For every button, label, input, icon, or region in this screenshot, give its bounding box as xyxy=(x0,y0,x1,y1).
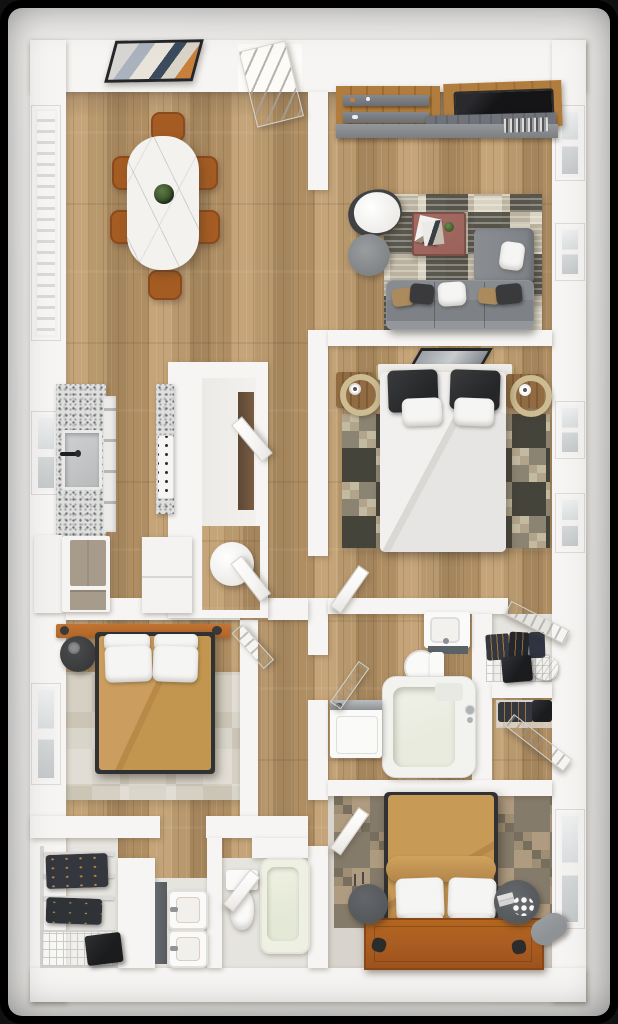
wall-bath2-top xyxy=(252,838,308,858)
closet-hanging-clothes-1 xyxy=(45,853,108,889)
washing-machine xyxy=(330,700,382,758)
sink-faucet xyxy=(170,907,178,912)
closet-a-clothes-3 xyxy=(529,632,546,659)
bed2-nightstand-black xyxy=(60,636,96,672)
wall-corridor-bath2 xyxy=(207,838,222,968)
bath2-sink-1 xyxy=(168,890,208,930)
wall-bed2-bottom-left xyxy=(30,816,160,838)
floorplan-render xyxy=(0,0,618,1024)
wall-closet-corridor xyxy=(118,858,155,968)
bedroom2-window xyxy=(32,684,60,784)
dining-centerpiece-plant xyxy=(154,184,174,204)
coffee-table-plant xyxy=(444,222,454,232)
bath2-tub xyxy=(260,858,310,954)
wall-bottom xyxy=(30,968,586,1002)
sofa-pillow-dark-2 xyxy=(495,283,523,306)
wall-bed2-bottom-right xyxy=(206,816,308,838)
master-pillow-white-right xyxy=(454,397,495,426)
fridge-doors xyxy=(70,540,106,586)
master-window-2 xyxy=(556,494,584,552)
dining-wall-art xyxy=(104,39,204,83)
wall-kitchen-bed2-right xyxy=(268,598,308,620)
washer-lid xyxy=(336,716,378,754)
gray-pouf xyxy=(348,234,390,276)
closet-b-black-box xyxy=(532,700,552,722)
wall-closet-divider xyxy=(492,682,552,698)
closet-black-hamper xyxy=(84,932,123,966)
tub-inner xyxy=(267,867,299,941)
tub-shower-handle xyxy=(466,706,474,714)
kitchen-sink xyxy=(62,430,102,490)
wall-master-bath xyxy=(328,598,508,614)
bed2-pillow-front-left xyxy=(104,645,152,683)
bath1-vanity xyxy=(424,612,470,648)
closet-hanging-clothes-2 xyxy=(46,897,103,925)
wall-spine-b xyxy=(308,330,328,556)
vanity-faucet xyxy=(443,638,449,644)
window-pane xyxy=(35,415,57,491)
bath2-granite-side xyxy=(155,882,167,964)
bedroom3-window xyxy=(556,810,584,928)
kitchen-base-cabinet-left xyxy=(34,535,62,613)
kitchen-cabinet-fronts xyxy=(104,396,116,532)
bed3-nightstand-left-antenna xyxy=(354,874,356,886)
wall-spine-e xyxy=(308,846,328,968)
sofa-pillow-white xyxy=(437,281,467,307)
bed3-nightstand-left xyxy=(348,884,388,924)
bed2-nightstand-lamp xyxy=(68,642,80,654)
bed2-speaker-left xyxy=(60,626,69,635)
pantry-open-slit xyxy=(238,392,254,510)
refrigerator xyxy=(62,536,110,612)
dining-chair-bottom xyxy=(148,270,182,300)
dining-louvered-window xyxy=(32,106,60,340)
window-pane xyxy=(559,813,581,925)
bed3-flowers xyxy=(512,896,534,916)
sofa-pillow-dark-1 xyxy=(409,283,435,305)
bath1-tub xyxy=(382,676,476,778)
magazine-2 xyxy=(422,220,445,246)
bath2-sink-2 xyxy=(168,930,208,968)
living-window-2 xyxy=(556,224,584,280)
wall-spine-c xyxy=(308,598,328,655)
platform-seam xyxy=(374,926,532,962)
wall-living-master xyxy=(328,330,552,346)
sink-basin xyxy=(176,897,200,923)
brass-lamp-left-dot xyxy=(353,387,357,391)
master-pillow-white-left xyxy=(402,397,443,426)
shelf2-decor-white xyxy=(352,115,358,119)
wall-spine-a xyxy=(308,92,328,190)
floating-shelf-1 xyxy=(343,95,429,106)
window-pane xyxy=(559,227,581,277)
bath1-toilet-tank xyxy=(430,652,444,678)
kitchen-base-cabinet-right xyxy=(142,537,192,613)
shelf-decor-white xyxy=(366,97,370,101)
brass-lamp-left xyxy=(340,374,382,416)
master-window-1 xyxy=(556,402,584,458)
brass-lamp-right-dot xyxy=(523,388,527,392)
kitchen-range xyxy=(158,436,173,498)
fridge-freezer-drawer xyxy=(70,590,106,610)
shelf-decor-orange xyxy=(350,98,355,102)
sink-faucet xyxy=(170,946,178,951)
tub-soap-ledge xyxy=(435,683,463,701)
bed2-pillow-front-right xyxy=(152,645,198,683)
master-duvet xyxy=(380,412,506,552)
shelf-books xyxy=(504,117,548,133)
window-pane xyxy=(559,497,581,549)
window-pane xyxy=(35,687,57,781)
kitchen-faucet-head xyxy=(75,450,81,457)
brass-lamp-right xyxy=(510,375,552,417)
chaise-pillow-white xyxy=(498,240,526,271)
wall-spine-d xyxy=(308,700,328,800)
louver-slats xyxy=(35,109,57,337)
closet-a-black-box xyxy=(501,655,533,684)
sink-basin xyxy=(176,937,200,961)
window-pane xyxy=(559,405,581,455)
